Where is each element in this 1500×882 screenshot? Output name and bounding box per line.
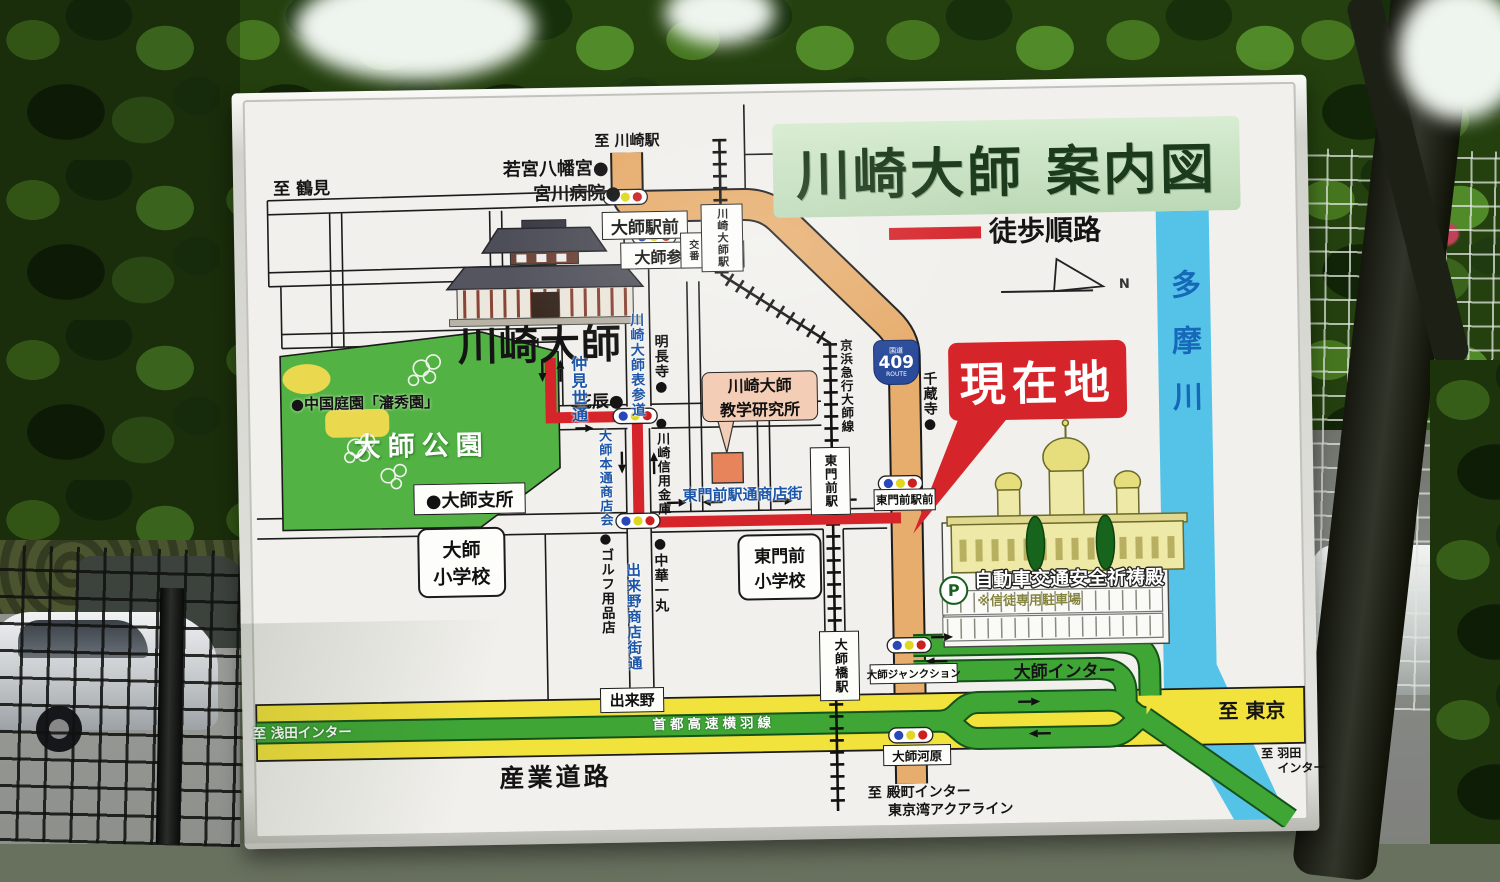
box-dekino: 出来野 xyxy=(600,687,664,713)
box-tomonmae-ekimae: 東門前駅前 xyxy=(873,488,935,511)
daishi-elem-line1: 大師 xyxy=(442,535,480,563)
river-label: 多摩川 xyxy=(1167,269,1200,437)
foliage-left xyxy=(0,0,240,585)
label-nakamise-dori: 仲見世通 xyxy=(568,355,587,423)
tomonmae-ekimae-label: 東門前駅前 xyxy=(876,491,934,508)
kd-station-label: 川崎大師駅 xyxy=(714,208,731,268)
label-wakamiya: 若宮八幡宮● xyxy=(503,159,609,181)
foliage-right-lower xyxy=(1430,360,1500,844)
daishi-shisho-label: ●大師支所 xyxy=(426,485,514,513)
box-daishi-junction: 大師ジャンクション xyxy=(870,663,958,685)
label-daishi-park: 大師公園 xyxy=(353,431,490,464)
label-hondori: 大師本通商店会 xyxy=(595,429,611,527)
box-daishi-elementary: 大師 小学校 xyxy=(417,527,506,599)
box-daishi-kawara: 大師河原 xyxy=(883,744,951,766)
fence-post xyxy=(156,588,184,844)
label-chuka-ichimaru: ●中華一丸 xyxy=(651,536,668,613)
label-miyakawa: 宮川病院● xyxy=(533,184,621,206)
sign-title: 川崎大師 案内図 xyxy=(772,116,1241,218)
kenkyujo-line2: 教学研究所 xyxy=(720,396,800,421)
tomonmae-station-label: 東門前駅 xyxy=(820,454,840,508)
label-to-haneda-2: インター xyxy=(1277,761,1325,775)
label-to-tsurumi: 至 鶴見 xyxy=(273,180,330,200)
label-shuto-expwy: 首都高速横羽線 xyxy=(652,716,775,733)
label-aqualine: 東京湾アクアライン xyxy=(888,802,1014,820)
label-parking-note: ※信徒専用駐車場 xyxy=(977,594,1081,610)
box-tomonmae-elementary: 東門前 小学校 xyxy=(737,533,822,600)
daishi-kawara-label: 大師河原 xyxy=(892,745,942,765)
label-to-tokyo: 至 東京 xyxy=(1218,699,1285,723)
daishi-elem-line2: 小学校 xyxy=(433,562,490,590)
label-kitoden: 自動車交通安全祈祷殿 xyxy=(974,567,1164,592)
mesh-fence-left xyxy=(0,545,248,847)
label-golf-shop: ●ゴルフ用品店 xyxy=(597,531,614,635)
you-are-here: 現在地 xyxy=(948,340,1127,421)
label-daishi-inter: 大師インター xyxy=(1014,662,1116,683)
tomon-elem-line1: 東門前 xyxy=(754,541,805,567)
box-daishi-ekimae: 大師駅前 xyxy=(602,210,688,239)
label-keihin-line: 京浜急行大師線 xyxy=(838,339,854,434)
label-to-haneda-1: 至 羽田 xyxy=(1261,747,1301,761)
kenkyujo-line1: 川崎大師 xyxy=(727,372,791,397)
label-to-kawasaki-sta: 至 川崎駅 xyxy=(594,132,660,150)
box-daishi-shisho: ●大師支所 xyxy=(413,482,526,515)
legend-walk-label: 徒歩順路 xyxy=(989,214,1102,247)
shield-route: ROUTE xyxy=(886,371,907,377)
label-shinkin: ●川崎信用金庫 xyxy=(653,416,669,516)
label-myochoji: 明長寺● xyxy=(652,334,669,396)
dekino-label: 出来野 xyxy=(609,689,654,711)
box-koban-label: 交番 xyxy=(685,239,700,261)
box-daishibashi-station: 大師橋駅 xyxy=(819,631,860,702)
label-senzoji: 千蔵寺● xyxy=(920,371,937,433)
daishi-junction-label: 大師ジャンクション xyxy=(867,665,961,682)
label-dekino-shotengai: 出来野商店街通 xyxy=(624,562,642,671)
label-to-asada: 至 浅田インター xyxy=(253,725,352,742)
label-tomon-shotengai: 東門前駅通商店街 xyxy=(682,486,802,505)
box-tomonmae-station: 東門前駅 xyxy=(810,447,851,516)
kenkyujo-bubble: 川崎大師 教学研究所 xyxy=(701,370,818,422)
guide-map-sign: 川崎大師 案内図 徒歩順路 N 多摩川 至 鶴見 至 川崎駅 至 東京 至 浅田… xyxy=(231,75,1319,850)
label-temple-name: 川崎大師 xyxy=(458,323,623,371)
legend-walk-line xyxy=(889,226,981,240)
box-kawasaki-daishi-station: 川崎大師駅 xyxy=(700,204,743,273)
compass-n-label: N xyxy=(1119,278,1130,293)
tomon-elem-line2: 小学校 xyxy=(754,566,805,592)
label-to-tonomachi: 至 殿町インター xyxy=(868,785,971,802)
label-sangyo-road: 産業道路 xyxy=(499,763,611,793)
box-daishi-ekimae-label: 大師駅前 xyxy=(611,212,679,238)
label-omotesando: 川崎大師表参道 xyxy=(627,312,645,417)
photo-of-guide-map-sign: { "colors": { "route_red": "#d6242b", "r… xyxy=(0,0,1500,844)
shield-number: 409 xyxy=(878,354,914,372)
route-409-shield: 国道 409 ROUTE xyxy=(873,339,920,385)
daishibashi-station-label: 大師橋駅 xyxy=(830,638,850,694)
map-area: 川崎大師 案内図 徒歩順路 N 多摩川 至 鶴見 至 川崎駅 至 東京 至 浅田… xyxy=(231,75,1319,850)
label-chinese-garden: ●中国庭園「瀋秀園」 xyxy=(291,394,439,413)
